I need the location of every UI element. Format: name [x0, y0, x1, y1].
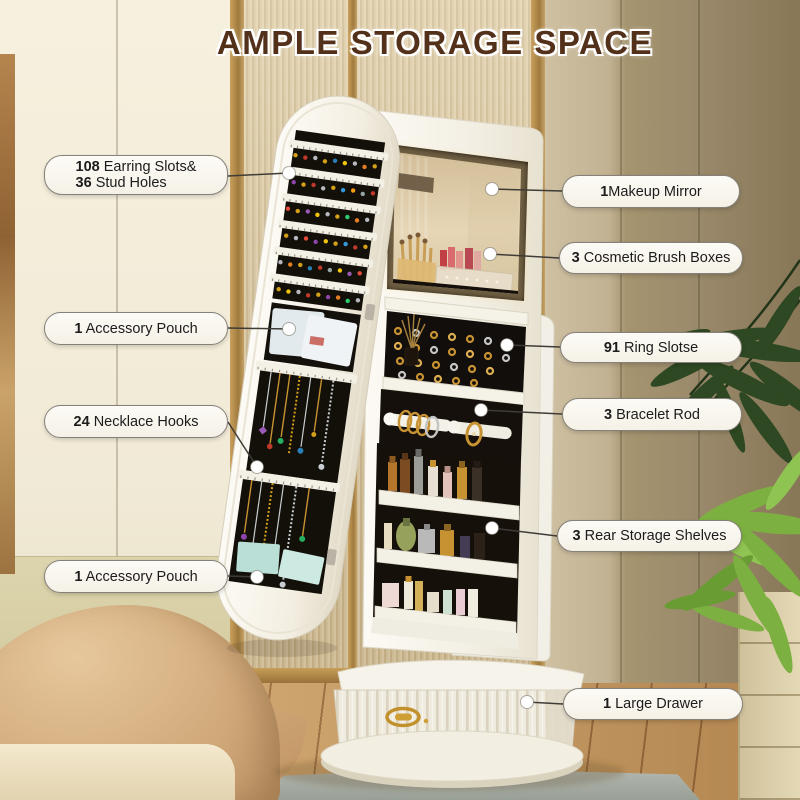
makeup-mirror — [387, 144, 528, 301]
swivel-base — [321, 660, 584, 788]
callout-cosmetic-brush-boxes: 3 Cosmetic Brush Boxes — [559, 242, 743, 274]
callout-ring-slots: 91 Ring Slotse — [560, 332, 742, 363]
callout-accessory-pouch-top: 1 Accessory Pouch — [44, 312, 228, 345]
callout-earring-slots: 108 Earring Slots& 36 Stud Holes — [44, 155, 228, 195]
storage-shelves — [371, 443, 521, 649]
accessory-pouch-top — [264, 302, 361, 372]
callout-line-2: 36 Stud Holes — [76, 175, 197, 191]
callout-large-drawer: 1 Large Drawer — [563, 688, 743, 720]
callout-makeup-mirror: 1Makeup Mirror — [562, 175, 740, 208]
callout-rear-storage-shelves: 3 Rear Storage Shelves — [557, 520, 742, 552]
callout-accessory-pouch-bottom: 1 Accessory Pouch — [44, 560, 228, 593]
door-shadow — [227, 639, 337, 657]
plant — [640, 260, 800, 676]
callout-necklace-hooks: 24 Necklace Hooks — [44, 405, 228, 438]
base-plate — [321, 731, 583, 781]
callout-bracelet-rod: 3 Bracelet Rod — [562, 398, 742, 431]
page-title: AMPLE STORAGE SPACE — [70, 24, 800, 62]
callout-line-1: 108 Earring Slots& — [76, 159, 197, 175]
product-infographic: AMPLE STORAGE SPACE 108 Earring Slots& 3… — [0, 0, 800, 800]
